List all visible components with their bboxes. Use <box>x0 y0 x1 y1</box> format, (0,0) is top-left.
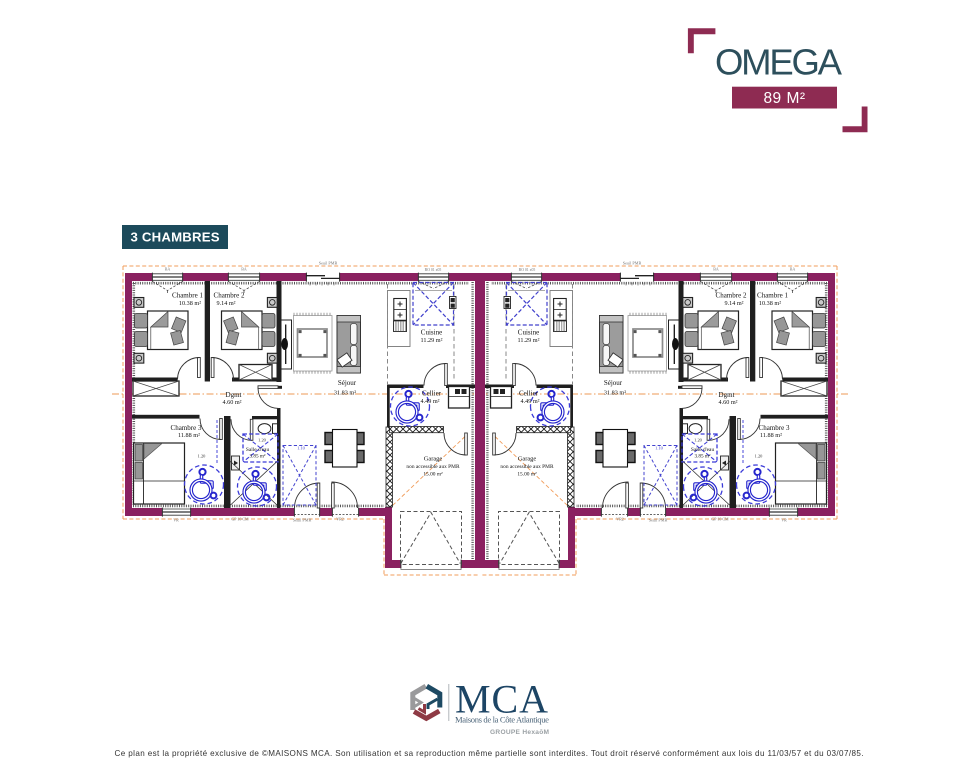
svg-text:Séjour: Séjour <box>338 379 357 387</box>
svg-text:non accessible aux PMR: non accessible aux PMR <box>406 464 460 470</box>
svg-text:Maisons de la Côte Atlantique: Maisons de la Côte Atlantique <box>455 715 549 725</box>
svg-text:Chambre 2: Chambre 2 <box>214 292 245 300</box>
svg-text:11.88 m²: 11.88 m² <box>178 432 200 439</box>
svg-text:Dgmt: Dgmt <box>226 391 242 399</box>
svg-text:BA: BA <box>165 267 171 272</box>
svg-text:Séjour: Séjour <box>604 379 623 387</box>
svg-text:Chambre 1: Chambre 1 <box>757 292 788 300</box>
svg-text:1.20: 1.20 <box>258 438 266 443</box>
svg-text:31.83 m²: 31.83 m² <box>604 390 626 397</box>
svg-text:Salle d'eau: Salle d'eau <box>246 447 270 453</box>
svg-text:4.60 m²: 4.60 m² <box>718 399 737 406</box>
svg-text:3.85 m²: 3.85 m² <box>695 454 711 460</box>
svg-text:31.83 m²: 31.83 m² <box>334 390 356 397</box>
svg-text:4.49 m²: 4.49 m² <box>420 398 439 405</box>
svg-text:VR2: VR2 <box>616 517 624 522</box>
svg-text:BO 01 x05: BO 01 x05 <box>425 268 442 272</box>
svg-text:Seuil PMR: Seuil PMR <box>293 518 312 523</box>
svg-text:non accessible aux PMR: non accessible aux PMR <box>500 464 554 470</box>
svg-text:1.10: 1.10 <box>655 446 663 451</box>
svg-text:1.10: 1.10 <box>297 446 305 451</box>
svg-text:11.29 m²: 11.29 m² <box>421 337 443 344</box>
svg-text:Seuil PMR: Seuil PMR <box>319 261 338 266</box>
svg-text:4.49 m²: 4.49 m² <box>520 398 539 405</box>
svg-text:GP 10 CM: GP 10 CM <box>711 517 729 522</box>
svg-text:Dgmt: Dgmt <box>719 391 735 399</box>
svg-text:Chambre 3: Chambre 3 <box>171 424 202 432</box>
svg-text:3.85 m²: 3.85 m² <box>250 454 266 460</box>
svg-text:11.88 m²: 11.88 m² <box>760 432 782 439</box>
svg-text:VR: VR <box>173 518 179 523</box>
svg-text:Cellier: Cellier <box>519 390 539 398</box>
svg-text:1.20: 1.20 <box>755 454 763 459</box>
svg-text:3 CHAMBRES: 3 CHAMBRES <box>131 230 220 245</box>
svg-text:15.00 m²: 15.00 m² <box>517 472 537 478</box>
svg-text:1.20: 1.20 <box>198 454 206 459</box>
svg-text:Garage: Garage <box>424 456 443 463</box>
svg-text:11.29 m²: 11.29 m² <box>518 337 540 344</box>
svg-text:GROUPE HexaōM: GROUPE HexaōM <box>490 729 550 736</box>
svg-text:Garage: Garage <box>518 456 537 463</box>
svg-text:Cuisine: Cuisine <box>518 329 539 337</box>
svg-text:Seuil PMR: Seuil PMR <box>623 261 642 266</box>
svg-text:BA: BA <box>790 267 796 272</box>
svg-text:9.14 m²: 9.14 m² <box>216 300 235 307</box>
svg-text:10.38 m²: 10.38 m² <box>179 300 201 307</box>
svg-text:BO 01 x05: BO 01 x05 <box>519 268 536 272</box>
svg-text:Salle d'eau: Salle d'eau <box>691 447 715 453</box>
svg-text:VR: VR <box>781 518 787 523</box>
svg-text:GP 10 CM: GP 10 CM <box>231 517 249 522</box>
svg-text:4.60 m²: 4.60 m² <box>222 399 241 406</box>
svg-text:Cellier: Cellier <box>422 390 442 398</box>
svg-text:15.00 m²: 15.00 m² <box>423 472 443 478</box>
svg-text:Seuil PMR: Seuil PMR <box>649 518 668 523</box>
svg-text:Cuisine: Cuisine <box>421 329 442 337</box>
svg-text:VR2: VR2 <box>336 517 344 522</box>
svg-text:Chambre 2: Chambre 2 <box>716 292 747 300</box>
svg-text:89 M²: 89 M² <box>763 90 805 107</box>
svg-text:Chambre 3: Chambre 3 <box>759 424 790 432</box>
svg-text:Chambre 1: Chambre 1 <box>172 292 203 300</box>
svg-text:9.14 m²: 9.14 m² <box>724 300 743 307</box>
svg-text:OMEGA: OMEGA <box>715 42 844 83</box>
svg-text:Ce plan est la propriété exclu: Ce plan est la propriété exclusive de ©M… <box>115 749 864 758</box>
svg-text:BA: BA <box>713 267 719 272</box>
svg-text:BA: BA <box>241 267 247 272</box>
svg-text:1.20: 1.20 <box>694 438 702 443</box>
svg-text:10.38 m²: 10.38 m² <box>759 300 781 307</box>
